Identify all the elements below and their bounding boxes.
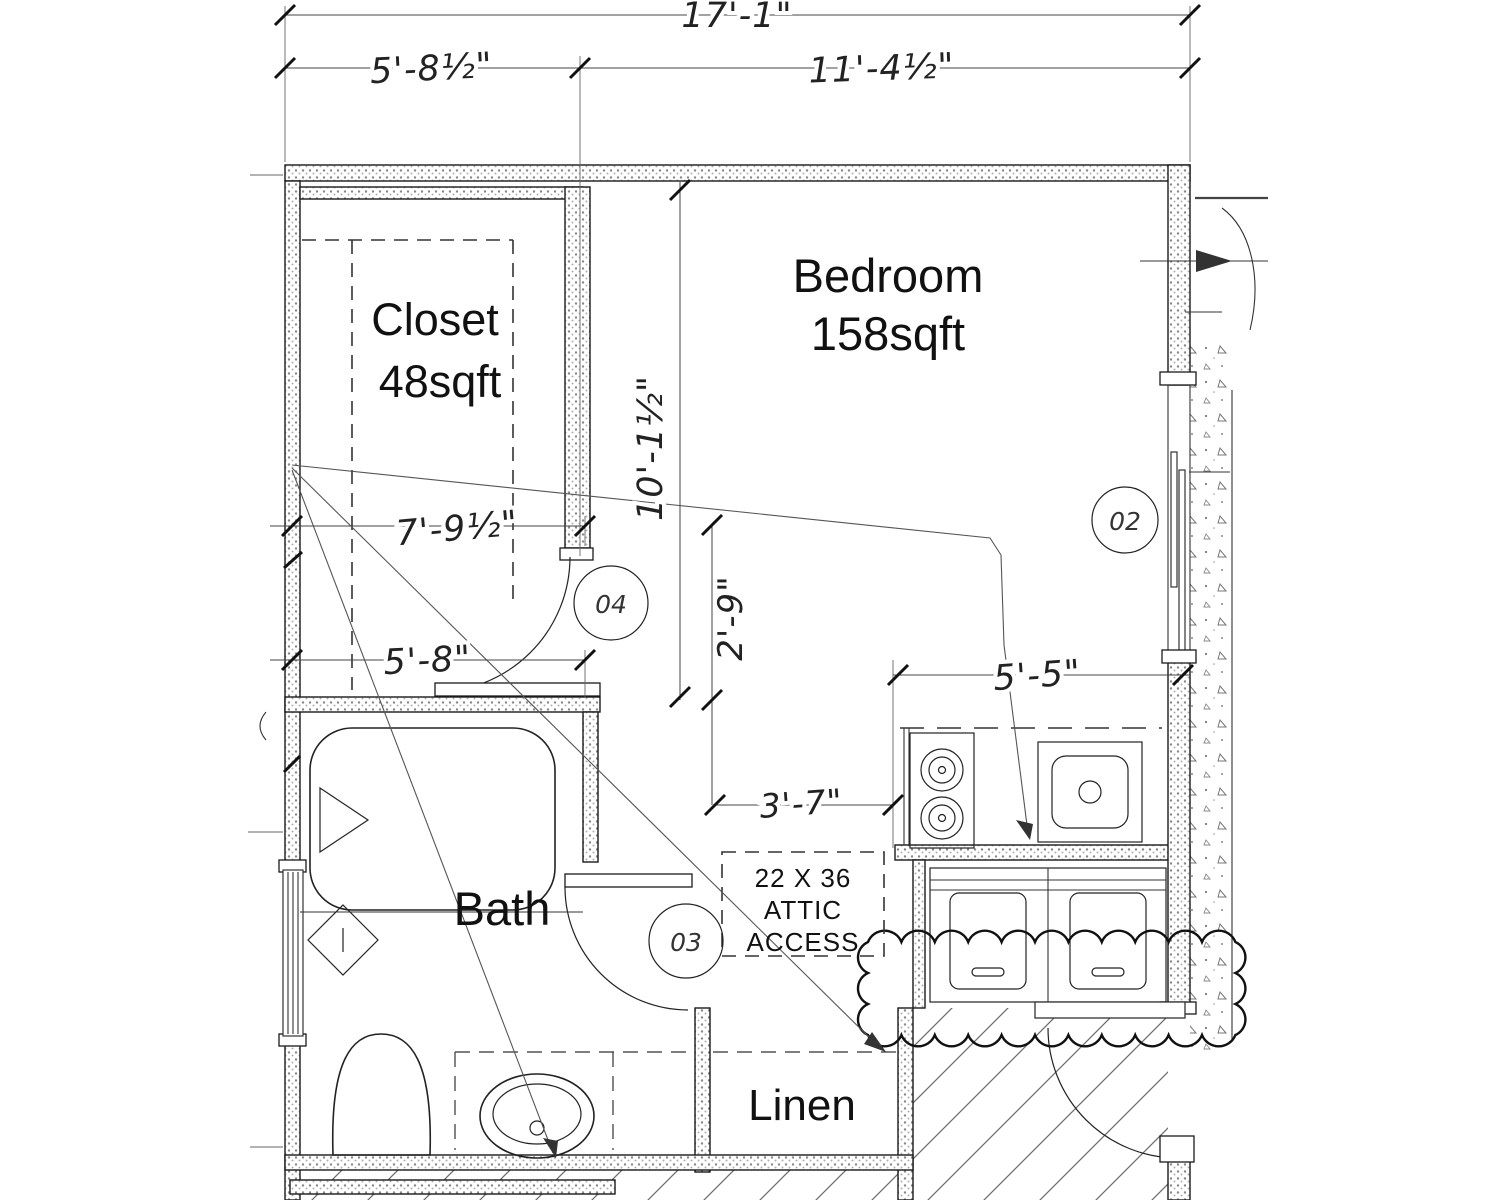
tag-bath-door: 03 <box>649 904 723 978</box>
kitchen-sink <box>1038 742 1142 842</box>
dim-overall-width: 17'-1" <box>681 0 792 36</box>
bedroom-area-label: 158sqft <box>811 307 965 360</box>
linen-label: Linen <box>748 1081 856 1130</box>
attic-access-line2: ATTIC <box>764 895 842 925</box>
wall-right-mid <box>1168 655 1190 1010</box>
bath-fixtures <box>300 728 693 1158</box>
floor-drain-icon <box>308 905 378 975</box>
wall-closet-top <box>300 187 583 199</box>
dim-closet-width: 5'-8½" <box>369 46 494 92</box>
cabinet-right-handle <box>1092 968 1124 976</box>
wall-linen-left <box>695 1008 710 1172</box>
wall-right-top <box>1168 165 1190 385</box>
dim-closet-front: 7'-9½" <box>394 504 520 555</box>
dimensions: 17'-1" 5'-8½" 11'-4½" 10'-1½" 2'-9" 7'-9… <box>270 0 1200 848</box>
tag-bedroom-window: 02 <box>1092 487 1158 553</box>
dim-bedroom-width: 11'-4½" <box>808 46 955 91</box>
hatch-area-right <box>913 1008 1168 1200</box>
wall-top-exterior <box>285 165 1190 181</box>
cabinet-left <box>950 893 1026 989</box>
windows <box>279 385 1196 1046</box>
wall-kitchen-divider <box>895 845 1190 860</box>
wall-bottom-outer <box>290 1180 615 1194</box>
wall-bath-right <box>583 712 598 862</box>
wall-laundry-left <box>913 860 925 1008</box>
bath-window <box>279 860 306 1046</box>
closet-label: Closet <box>371 294 499 345</box>
bath-sink <box>480 1074 594 1158</box>
dim-hall-width: 2'-9" <box>711 575 751 661</box>
vanity-dashed-counter <box>455 1052 693 1150</box>
attic-access-line3: ACCESS <box>747 927 860 957</box>
svg-text:02: 02 <box>1109 507 1141 536</box>
wall-bottom-inner <box>285 1155 913 1170</box>
concrete-texture <box>1190 340 1232 1052</box>
wall-left-lower <box>285 1043 300 1200</box>
svg-text:03: 03 <box>670 928 702 957</box>
bath-label: Bath <box>454 882 551 935</box>
wall-bath-top <box>285 697 600 712</box>
cabinet-left-handle <box>972 968 1004 976</box>
dim-counter-span: 5'-5" <box>992 653 1082 699</box>
section-arrowhead <box>1196 250 1232 272</box>
dim-bedroom-depth: 10'-1½" <box>631 375 671 521</box>
wall-right-bottom <box>1168 1160 1190 1200</box>
attic-access-line1: 22 X 36 <box>755 863 852 893</box>
wall-cap-window-top <box>1160 372 1196 385</box>
dim-attic-span: 3'-7" <box>758 781 844 826</box>
tub-faucet-icon <box>320 788 368 852</box>
floor-plan-sheet: 17'-1" 5'-8½" 11'-4½" 10'-1½" 2'-9" 7'-9… <box>0 0 1500 1200</box>
svg-text:04: 04 <box>595 590 627 619</box>
closet-area-label: 48sqft <box>379 356 502 407</box>
bedroom-label: Bedroom <box>793 249 984 302</box>
dim-bath-width: 5'-8" <box>382 639 472 684</box>
threshold-step <box>1035 1002 1185 1018</box>
wall-cap-closet-door <box>560 548 593 560</box>
tag-closet-door: 04 <box>574 566 648 640</box>
cooktop <box>910 733 974 848</box>
floor-plan-drawing: 17'-1" 5'-8½" 11'-4½" 10'-1½" 2'-9" 7'-9… <box>0 0 1500 1200</box>
toilet <box>333 1034 431 1155</box>
